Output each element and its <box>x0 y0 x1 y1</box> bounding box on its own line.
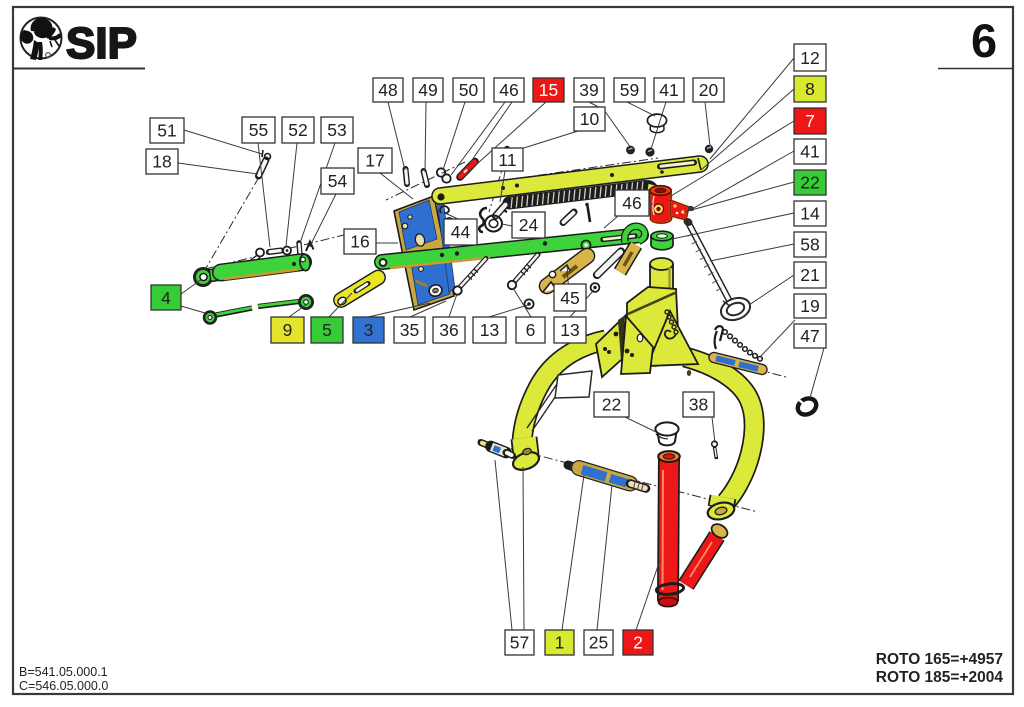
svg-text:18: 18 <box>152 152 171 172</box>
svg-text:2: 2 <box>633 633 643 653</box>
svg-text:9: 9 <box>283 320 293 340</box>
svg-text:17: 17 <box>365 151 384 171</box>
svg-text:50: 50 <box>459 80 479 100</box>
svg-text:36: 36 <box>439 320 458 340</box>
svg-text:22: 22 <box>800 173 819 193</box>
svg-text:48: 48 <box>378 80 397 100</box>
svg-text:51: 51 <box>157 121 176 141</box>
svg-text:24: 24 <box>519 215 539 235</box>
svg-text:8: 8 <box>805 79 815 99</box>
svg-text:55: 55 <box>249 120 268 140</box>
svg-text:6: 6 <box>526 320 536 340</box>
svg-text:SIP: SIP <box>66 19 137 68</box>
svg-text:44: 44 <box>451 222 471 242</box>
svg-text:21: 21 <box>800 265 819 285</box>
svg-text:46: 46 <box>499 80 518 100</box>
svg-text:11: 11 <box>498 150 516 170</box>
svg-text:39: 39 <box>579 80 598 100</box>
svg-text:ROTO 185=+2004: ROTO 185=+2004 <box>876 669 1004 686</box>
svg-text:14: 14 <box>800 204 820 224</box>
svg-text:53: 53 <box>327 120 346 140</box>
svg-text:58: 58 <box>800 235 819 255</box>
svg-text:35: 35 <box>400 320 419 340</box>
svg-text:1: 1 <box>555 633 565 653</box>
svg-text:54: 54 <box>328 171 348 191</box>
svg-text:45: 45 <box>560 288 579 308</box>
svg-text:47: 47 <box>800 326 819 346</box>
svg-text:52: 52 <box>288 120 307 140</box>
svg-text:25: 25 <box>589 633 608 653</box>
svg-text:4: 4 <box>161 288 171 308</box>
svg-text:13: 13 <box>560 320 579 340</box>
svg-text:46: 46 <box>622 193 641 213</box>
svg-text:22: 22 <box>602 395 621 415</box>
svg-text:15: 15 <box>539 80 558 100</box>
svg-text:C=546.05.000.0: C=546.05.000.0 <box>19 679 108 693</box>
svg-text:13: 13 <box>480 320 499 340</box>
svg-text:B=541.05.000.1: B=541.05.000.1 <box>19 665 108 679</box>
svg-text:7: 7 <box>805 111 815 131</box>
svg-text:49: 49 <box>418 80 437 100</box>
svg-text:12: 12 <box>800 48 819 68</box>
svg-text:41: 41 <box>800 142 819 162</box>
svg-text:ROTO 165=+4957: ROTO 165=+4957 <box>876 651 1003 668</box>
svg-text:20: 20 <box>699 80 719 100</box>
svg-text:59: 59 <box>620 80 639 100</box>
svg-text:41: 41 <box>659 80 678 100</box>
svg-text:5: 5 <box>322 320 332 340</box>
svg-text:16: 16 <box>350 232 369 252</box>
svg-text:6: 6 <box>971 14 997 67</box>
svg-text:19: 19 <box>800 296 819 316</box>
svg-text:57: 57 <box>510 633 529 653</box>
svg-text:38: 38 <box>689 395 708 415</box>
svg-text:10: 10 <box>580 109 600 129</box>
svg-text:3: 3 <box>364 320 374 340</box>
